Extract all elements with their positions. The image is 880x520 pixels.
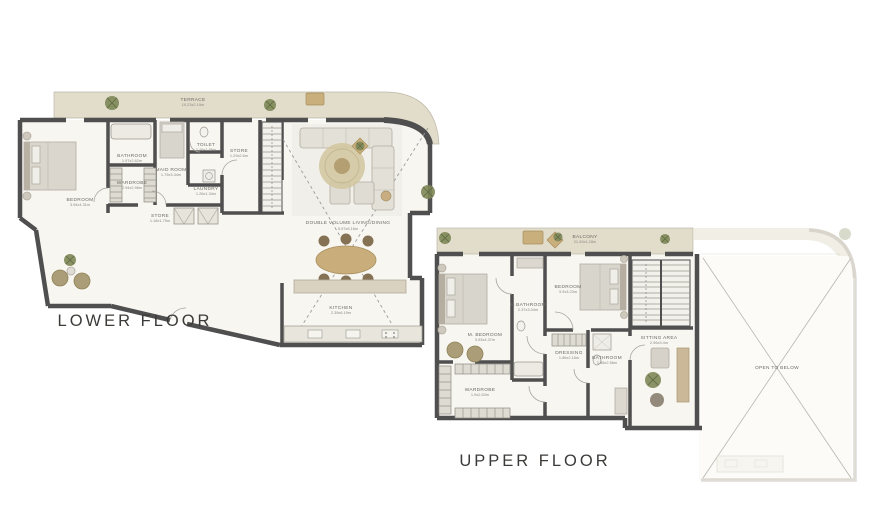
room-dims-maid-room: 1.79x3.34m xyxy=(161,172,181,177)
ghost-kitchen-below xyxy=(717,456,783,472)
room-dims-balcony: 21.39x1.28m xyxy=(574,239,597,244)
room-dims-wardrobe-upper: 1.9x2.63m xyxy=(471,392,489,397)
toilet-wc xyxy=(200,127,208,137)
bathtub-lower xyxy=(111,124,151,139)
room-dims-master-bedroom: 3.93x4.37m xyxy=(475,337,495,342)
bed-master xyxy=(439,274,487,324)
room-dims-master-bathroom: 2.37x3.04m xyxy=(518,307,538,312)
room-dims-toilet: 1.26x1.56m xyxy=(196,147,216,152)
staircase-upper xyxy=(632,260,690,326)
laundry-appliance xyxy=(203,170,215,182)
nightstand xyxy=(23,192,31,200)
plant-icon xyxy=(105,96,119,110)
floorplan-canvas: TERRACE 19.23x2.19m BEDROOM 3.94x4.31m B… xyxy=(0,0,880,520)
wc-master xyxy=(517,321,525,331)
room-dims-terrace: 19.23x2.19m xyxy=(182,102,205,107)
room-dims-wardrobe: 2.94x2.96m xyxy=(122,185,142,190)
upper-floor-title: UPPER FLOOR xyxy=(455,452,615,471)
room-dims-laundry: 1.26x1.34m xyxy=(196,191,216,196)
plant-icon xyxy=(660,234,670,244)
bed-lower xyxy=(24,142,76,190)
room-dims-bathroom-2: 1.86x2.56m xyxy=(597,360,617,365)
room-dims-kitchen: 2.39x6.19m xyxy=(331,310,351,315)
room-dims-store-foyer: 1.18x1.75m xyxy=(150,218,170,223)
plant-icon xyxy=(356,142,365,151)
plant-icon xyxy=(421,185,435,199)
nightstand xyxy=(438,326,446,334)
nightstand xyxy=(621,312,628,319)
planter-box xyxy=(306,93,324,105)
nightstand xyxy=(621,256,628,263)
plant-icon xyxy=(64,254,76,266)
room-dims-living-dining: 5.97x8.16m xyxy=(338,226,358,231)
room-dims-bedroom-2: 3.9x3.23m xyxy=(559,289,577,294)
staircase-lower xyxy=(262,122,282,212)
bed-upper xyxy=(580,264,626,310)
room-label-open-to-below: OPEN TO BELOW xyxy=(755,365,799,371)
plant-icon xyxy=(439,232,451,244)
room-dims-dressing: 1.86x2.16m xyxy=(559,355,579,360)
nightstand xyxy=(438,264,446,272)
plant-icon xyxy=(264,99,276,111)
room-dims-bedroom: 3.94x4.31m xyxy=(70,202,90,207)
balcony-deck xyxy=(437,228,693,254)
vanity-master xyxy=(517,258,543,268)
dressing-closet xyxy=(552,334,586,346)
room-dims-sitting-area: 2.96x3.4m xyxy=(650,340,668,345)
dining-table xyxy=(316,234,376,287)
room-dims-store: 1.29x2.6m xyxy=(230,153,248,158)
plant-icon xyxy=(554,233,563,242)
plant-icon xyxy=(645,372,661,388)
room-dims-bathroom: 1.97x2.62m xyxy=(122,158,142,163)
bathtub-master xyxy=(514,362,543,376)
plant-icon xyxy=(839,228,851,240)
maid-bed xyxy=(160,122,184,158)
lower-floor-title: LOWER FLOOR xyxy=(55,312,215,331)
nightstand xyxy=(23,132,31,140)
planter-box xyxy=(523,231,543,244)
